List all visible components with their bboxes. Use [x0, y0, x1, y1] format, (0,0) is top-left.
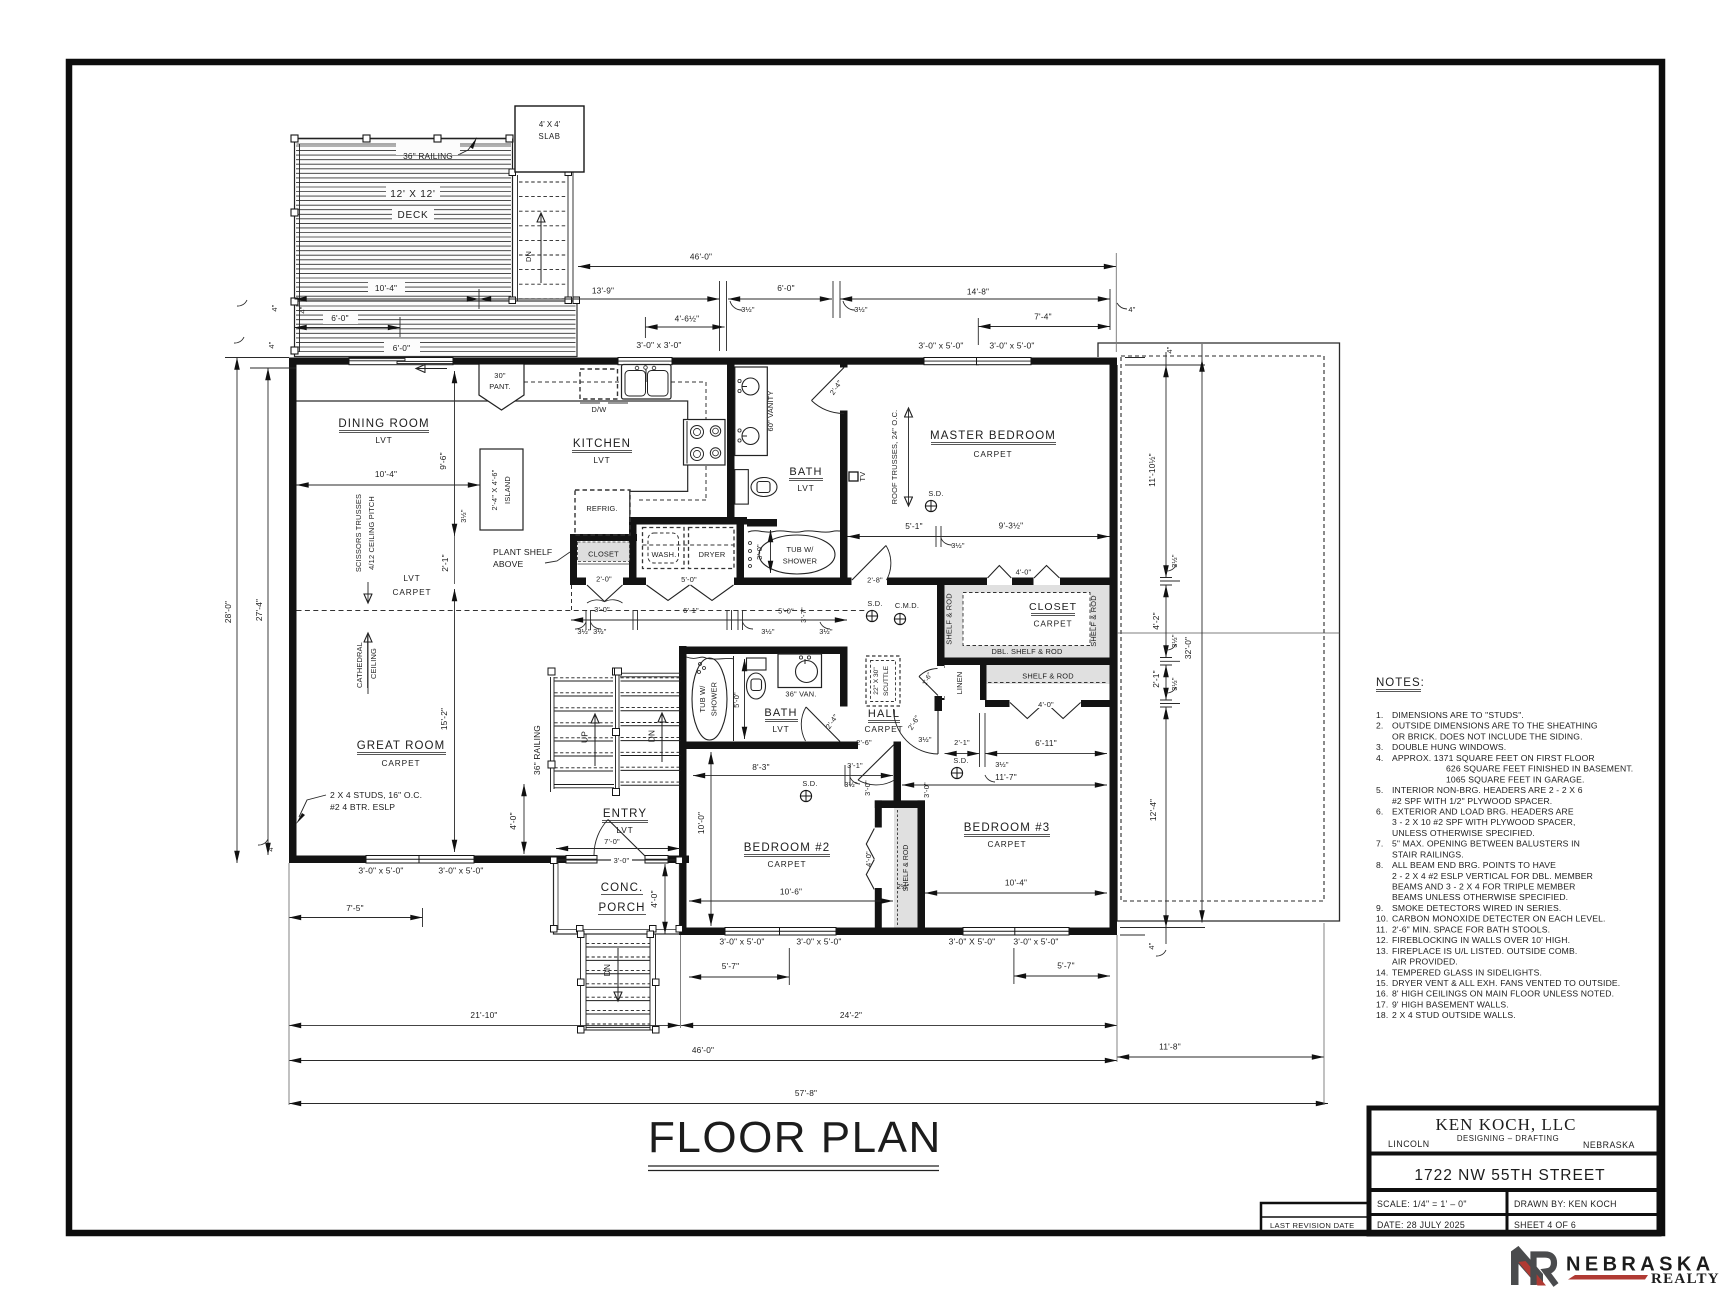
svg-text:S.D.: S.D. [802, 779, 817, 788]
svg-text:4": 4" [267, 341, 276, 348]
svg-text:TUB W/: TUB W/ [786, 545, 814, 554]
svg-text:24'-2": 24'-2" [840, 1010, 862, 1020]
svg-text:4'-0": 4'-0" [508, 812, 518, 830]
svg-text:CARPET: CARPET [381, 758, 420, 768]
svg-text:DIMENSIONS ARE TO "STUDS".: DIMENSIONS ARE TO "STUDS". [1392, 710, 1524, 720]
svg-text:CARPET: CARPET [973, 449, 1012, 459]
svg-text:MASTER BEDROOM: MASTER BEDROOM [930, 430, 1056, 442]
svg-text:SHELF & ROD: SHELF & ROD [945, 593, 954, 644]
svg-text:2'-1": 2'-1" [1151, 670, 1161, 688]
svg-text:3.: 3. [1376, 742, 1383, 752]
svg-text:GREAT ROOM: GREAT ROOM [357, 740, 446, 752]
svg-text:SHOWER: SHOWER [783, 557, 817, 566]
svg-text:LVT: LVT [593, 455, 610, 465]
svg-text:13'-9": 13'-9" [592, 286, 614, 296]
svg-text:4' X 4': 4' X 4' [539, 120, 561, 129]
svg-text:6'-0": 6'-0" [331, 313, 349, 323]
svg-text:CLOSET: CLOSET [588, 550, 619, 559]
svg-text:EXTERIOR AND LOAD BRG. HEADERS: EXTERIOR AND LOAD BRG. HEADERS ARE [1392, 807, 1574, 817]
svg-text:PLANT SHELF: PLANT SHELF [493, 547, 552, 557]
svg-text:BEAMS AND 3 - 2 X 4 FOR TRIPLE: BEAMS AND 3 - 2 X 4 FOR TRIPLE MEMBER [1392, 882, 1576, 892]
svg-text:4'-2": 4'-2" [1151, 612, 1161, 630]
svg-text:ALL BEAM END BRG. POINTS TO HA: ALL BEAM END BRG. POINTS TO HAVE [1392, 860, 1556, 870]
svg-text:CARPET: CARPET [767, 859, 806, 869]
svg-text:27'-4": 27'-4" [254, 599, 264, 621]
svg-text:LVT: LVT [616, 825, 633, 835]
svg-text:6'-1": 6'-1" [683, 606, 699, 615]
svg-text:BEAMS UNLESS OTHERWISE SPECIFI: BEAMS UNLESS OTHERWISE SPECIFIED. [1392, 892, 1568, 902]
svg-text:S.D.: S.D. [928, 489, 943, 498]
svg-text:10'-4": 10'-4" [375, 469, 397, 479]
svg-text:9'-6": 9'-6" [438, 452, 448, 470]
svg-text:8.: 8. [1376, 860, 1383, 870]
svg-text:5'-0": 5'-0" [732, 692, 741, 708]
svg-text:CATHEDRAL: CATHEDRAL [355, 642, 364, 688]
svg-text:46'-0": 46'-0" [692, 1045, 714, 1055]
svg-text:36" VAN.: 36" VAN. [785, 690, 816, 699]
svg-text:3½": 3½" [844, 780, 858, 789]
svg-text:2'-1": 2'-1" [954, 738, 970, 747]
svg-text:4'-0": 4'-0" [1038, 700, 1054, 709]
svg-text:3'-0": 3'-0" [614, 856, 630, 865]
svg-text:11'-10½": 11'-10½" [1147, 453, 1157, 487]
svg-text:32'-0": 32'-0" [1183, 637, 1193, 659]
svg-text:LAST REVISION DATE: LAST REVISION DATE [1270, 1221, 1354, 1230]
svg-text:STAIR RAILINGS.: STAIR RAILINGS. [1392, 849, 1464, 859]
svg-text:FLOOR PLAN: FLOOR PLAN [648, 1113, 942, 1162]
svg-text:3½" 3½": 3½" 3½" [577, 627, 606, 636]
svg-text:12'-4": 12'-4" [1148, 799, 1158, 821]
svg-text:4.: 4. [1376, 753, 1383, 763]
svg-text:LINCOLN: LINCOLN [1388, 1139, 1430, 1149]
svg-text:3'-7": 3'-7" [799, 607, 808, 623]
svg-text:11'-8": 11'-8" [1159, 1042, 1181, 1052]
svg-text:OR BRICK. DOES NOT INCLUDE TH: OR BRICK. DOES NOT INCLUDE THE SIDING. [1392, 731, 1583, 741]
svg-text:3'-0" x 5'-0": 3'-0" x 5'-0" [918, 341, 963, 351]
svg-text:2 X 4 STUDS, 16" O.C.: 2 X 4 STUDS, 16" O.C. [330, 790, 422, 800]
svg-text:15.: 15. [1376, 978, 1388, 988]
svg-text:4": 4" [298, 306, 307, 313]
svg-text:FIREBLOCKING IN WALLS OVER 10': FIREBLOCKING IN WALLS OVER 10' HIGH. [1392, 935, 1570, 945]
svg-text:FIREPLACE IS U/L LISTED. OUTS: FIREPLACE IS U/L LISTED. OUTSIDE COMB. [1392, 946, 1577, 956]
svg-text:2½": 2½" [897, 883, 910, 891]
svg-text:3½": 3½" [761, 627, 775, 636]
svg-text:INTERIOR NON-BRG. HEADERS ARE: INTERIOR NON-BRG. HEADERS ARE 2 - 2 X 6 [1392, 785, 1583, 795]
svg-text:CEILING: CEILING [369, 648, 378, 679]
svg-text:14.: 14. [1376, 967, 1388, 977]
svg-text:3½": 3½" [918, 735, 932, 744]
svg-text:#2 SPF WITH 1/2" PLYWOOD SPACE: #2 SPF WITH 1/2" PLYWOOD SPACER. [1392, 796, 1552, 806]
svg-text:5'-0": 5'-0" [681, 575, 697, 584]
svg-text:S.D.: S.D. [867, 599, 882, 608]
svg-text:SCUTTLE: SCUTTLE [883, 665, 890, 696]
svg-text:2'-4" X 4'-6": 2'-4" X 4'-6" [490, 469, 499, 510]
svg-text:TV: TV [858, 472, 867, 482]
svg-text:2 X 4 STUD OUTSIDE WALLS.: 2 X 4 STUD OUTSIDE WALLS. [1392, 1010, 1516, 1020]
svg-text:REFRIG.: REFRIG. [586, 504, 617, 513]
svg-text:16.: 16. [1376, 989, 1388, 999]
svg-text:S.D.: S.D. [953, 756, 968, 765]
svg-text:3'-0": 3'-0" [863, 780, 872, 796]
svg-text:C.M.D.: C.M.D. [895, 601, 919, 610]
svg-text:DATE: 28 JULY 2025: DATE: 28 JULY 2025 [1377, 1220, 1465, 1230]
svg-text:13.: 13. [1376, 946, 1388, 956]
svg-text:15'-2": 15'-2" [439, 708, 449, 730]
svg-text:CARPET: CARPET [392, 587, 431, 597]
svg-text:5'-7": 5'-7" [1057, 961, 1075, 971]
svg-text:2'-6" MIN. SPACE FOR BATH STOO: 2'-6" MIN. SPACE FOR BATH STOOLS. [1392, 924, 1550, 934]
svg-text:CARPET: CARPET [1033, 619, 1072, 629]
svg-text:LVT: LVT [403, 573, 420, 583]
svg-text:ABOVE: ABOVE [493, 559, 523, 569]
svg-text:2'-6": 2'-6" [856, 738, 872, 747]
svg-text:3½": 3½" [459, 509, 468, 523]
svg-text:12' X 12': 12' X 12' [390, 189, 436, 200]
svg-text:DESIGNING – DRAFTING: DESIGNING – DRAFTING [1457, 1134, 1559, 1143]
svg-text:3½": 3½" [741, 305, 755, 314]
svg-text:3'-0" x 5'-0": 3'-0" x 5'-0" [1013, 937, 1058, 947]
svg-text:6'-0": 6'-0" [777, 283, 795, 293]
svg-text:CONC.: CONC. [601, 882, 644, 894]
svg-text:REALTY: REALTY [1651, 1271, 1720, 1287]
svg-text:1065 SQUARE FEET IN GARAGE.: 1065 SQUARE FEET IN GARAGE. [1446, 774, 1585, 784]
svg-text:DN: DN [524, 251, 533, 262]
svg-text:30": 30" [494, 371, 506, 380]
svg-text:8' HIGH CEILINGS ON MAIN FLOOR: 8' HIGH CEILINGS ON MAIN FLOOR UNLESS NO… [1392, 989, 1614, 999]
svg-text:7'-0": 7'-0" [604, 837, 620, 846]
svg-text:60" VANITY: 60" VANITY [766, 390, 775, 431]
svg-text:10'-0": 10'-0" [696, 812, 706, 834]
svg-text:626 SQUARE FEET FINISHED IN BA: 626 SQUARE FEET FINISHED IN BASEMENT. [1446, 764, 1633, 774]
svg-text:D/W: D/W [592, 405, 607, 414]
svg-text:6'-0": 6'-0" [393, 343, 411, 353]
svg-text:4'-0": 4'-0" [864, 851, 873, 867]
svg-text:3½": 3½" [951, 541, 965, 550]
svg-text:DRAWN BY: KEN KOCH: DRAWN BY: KEN KOCH [1514, 1199, 1617, 1209]
svg-text:2 - 2 X 4 #2 ESLP VERTICAL FOR: 2 - 2 X 4 #2 ESLP VERTICAL FOR DBL. MEMB… [1392, 871, 1593, 881]
svg-text:3'-0": 3'-0" [755, 544, 764, 560]
svg-text:4": 4" [1128, 305, 1135, 314]
svg-text:6'-11": 6'-11" [1035, 738, 1057, 748]
svg-text:SHEET 4 OF 6: SHEET 4 OF 6 [1514, 1220, 1576, 1230]
svg-text:4'-0": 4'-0" [1016, 568, 1032, 577]
svg-text:LVT: LVT [772, 724, 789, 734]
svg-text:3'-0" x 5'-0": 3'-0" x 5'-0" [989, 341, 1034, 351]
svg-text:17.: 17. [1376, 999, 1388, 1009]
svg-text:4'-0": 4'-0" [649, 890, 659, 908]
svg-text:5.: 5. [1376, 785, 1383, 795]
svg-text:21'-10": 21'-10" [470, 1010, 497, 1020]
svg-text:7.: 7. [1376, 839, 1383, 849]
svg-text:3½": 3½" [854, 305, 868, 314]
svg-text:SCALE: 1/4" = 1' – 0": SCALE: 1/4" = 1' – 0" [1377, 1199, 1467, 1209]
svg-text:3½": 3½" [819, 627, 833, 636]
svg-text:ENTRY: ENTRY [603, 808, 647, 820]
svg-text:3 - 2 X 10 #2 SPF WITH PLYWOO: 3 - 2 X 10 #2 SPF WITH PLYWOOD SPACER, [1392, 817, 1576, 827]
svg-text:5'-1": 5'-1" [905, 521, 923, 531]
svg-text:4": 4" [1165, 346, 1174, 353]
svg-text:7'-5": 7'-5" [346, 903, 364, 913]
svg-text:11'-7": 11'-7" [995, 772, 1017, 782]
svg-text:5" MAX. OPENING BETWEEN BALUST: 5" MAX. OPENING BETWEEN BALUSTERS IN [1392, 839, 1580, 849]
svg-text:36" RAILING: 36" RAILING [403, 151, 453, 161]
svg-text:57'-8": 57'-8" [795, 1088, 817, 1098]
svg-text:BATH: BATH [789, 466, 822, 478]
svg-text:ISLAND: ISLAND [503, 476, 512, 504]
svg-text:2'-0": 2'-0" [596, 575, 612, 584]
svg-text:2.: 2. [1376, 721, 1383, 731]
svg-text:3'-1": 3'-1" [847, 761, 863, 770]
svg-text:PANT.: PANT. [489, 382, 510, 391]
svg-text:5'-0": 5'-0" [778, 607, 794, 616]
svg-text:46'-0": 46'-0" [690, 252, 712, 262]
svg-text:TUB W/: TUB W/ [698, 685, 707, 713]
svg-text:BEDROOM #3: BEDROOM #3 [964, 822, 1050, 834]
svg-text:BEDROOM #2: BEDROOM #2 [744, 842, 830, 854]
svg-text:DN: DN [602, 964, 612, 976]
svg-text:AIR PROVIDED.: AIR PROVIDED. [1392, 957, 1458, 967]
svg-text:3½": 3½" [1170, 677, 1179, 691]
svg-text:3'-0" X 5'-0": 3'-0" X 5'-0" [949, 937, 996, 947]
svg-text:SHELF & ROD: SHELF & ROD [1022, 672, 1073, 681]
svg-text:UNLESS OTHERWISE SPECIFIED.: UNLESS OTHERWISE SPECIFIED. [1392, 828, 1535, 838]
svg-text:TEMPERED GLASS IN SIDELIGHTS.: TEMPERED GLASS IN SIDELIGHTS. [1392, 967, 1542, 977]
svg-text:36" RAILING: 36" RAILING [532, 725, 542, 775]
svg-text:DRYER VENT & ALL EXH. FANS VEN: DRYER VENT & ALL EXH. FANS VENTED TO OUT… [1392, 978, 1620, 988]
svg-text:3'-0" x 5'-0": 3'-0" x 5'-0" [358, 866, 403, 876]
svg-text:ROOF TRUSSES, 24" O.C.: ROOF TRUSSES, 24" O.C. [890, 410, 899, 505]
svg-text:CARBON MONOXIDE DETECTER ON EA: CARBON MONOXIDE DETECTER ON EACH LEVEL. [1392, 914, 1606, 924]
svg-text:OUTSIDE DIMENSIONS ARE TO THE: OUTSIDE DIMENSIONS ARE TO THE SHEATHING [1392, 721, 1598, 731]
svg-text:SHELF & ROD: SHELF & ROD [1089, 595, 1098, 646]
svg-text:2'-1": 2'-1" [440, 554, 450, 572]
svg-text:10'-4": 10'-4" [1005, 878, 1027, 888]
svg-text:1.: 1. [1376, 710, 1383, 720]
svg-text:5'-7": 5'-7" [722, 961, 740, 971]
svg-text:SCISSORS TRUSSES: SCISSORS TRUSSES [354, 494, 363, 572]
svg-text:22" X 30": 22" X 30" [873, 667, 880, 695]
svg-text:3½": 3½" [1170, 634, 1179, 648]
svg-text:3'-0": 3'-0" [922, 782, 931, 798]
svg-text:6.: 6. [1376, 807, 1383, 817]
svg-text:3½": 3½" [995, 760, 1009, 769]
svg-text:10'-4": 10'-4" [375, 283, 397, 293]
svg-text:NOTES:: NOTES: [1376, 677, 1425, 689]
svg-text:UP: UP [580, 731, 590, 743]
svg-text:DECK: DECK [398, 210, 429, 221]
svg-text:10'-6": 10'-6" [780, 887, 802, 897]
svg-text:NEBRASKA: NEBRASKA [1583, 1140, 1635, 1150]
svg-text:KITCHEN: KITCHEN [573, 438, 631, 450]
svg-text:3'-0" x 5'-0": 3'-0" x 5'-0" [796, 937, 841, 947]
svg-text:4/12 CEILING PITCH: 4/12 CEILING PITCH [367, 496, 376, 570]
svg-text:3'-0" x 3'-0": 3'-0" x 3'-0" [636, 340, 681, 350]
svg-text:SLAB: SLAB [539, 132, 561, 141]
svg-text:18.: 18. [1376, 1010, 1388, 1020]
svg-text:3'-0": 3'-0" [594, 605, 610, 614]
svg-text:DN: DN [647, 730, 657, 742]
svg-text:4": 4" [266, 844, 275, 851]
svg-text:LVT: LVT [797, 483, 814, 493]
svg-text:9'-3½": 9'-3½" [999, 521, 1024, 531]
svg-text:10.: 10. [1376, 914, 1388, 924]
svg-text:CARPET: CARPET [987, 839, 1026, 849]
svg-text:7'-4": 7'-4" [1034, 312, 1052, 322]
svg-text:8'-3": 8'-3" [752, 762, 770, 772]
svg-text:CARPET: CARPET [864, 724, 903, 734]
svg-text:1722 NW 55TH STREET: 1722 NW 55TH STREET [1414, 1167, 1605, 1184]
svg-text:LINEN: LINEN [955, 672, 964, 695]
svg-text:HALL: HALL [868, 708, 900, 720]
svg-text:DRYER: DRYER [699, 550, 726, 559]
svg-text:DINING ROOM: DINING ROOM [338, 418, 429, 430]
svg-text:9.: 9. [1376, 903, 1383, 913]
svg-text:DBL. SHELF & ROD: DBL. SHELF & ROD [992, 647, 1063, 656]
svg-text:SMOKE DETECTORS WIRED IN SERIE: SMOKE DETECTORS WIRED IN SERIES. [1392, 903, 1561, 913]
svg-text:12.: 12. [1376, 935, 1388, 945]
svg-text:28'-0": 28'-0" [223, 601, 233, 623]
svg-text:#2 4 BTR. ESLP: #2 4 BTR. ESLP [330, 802, 395, 812]
svg-text:3½": 3½" [1170, 554, 1179, 568]
svg-text:9' HIGH BASEMENT WALLS.: 9' HIGH BASEMENT WALLS. [1392, 999, 1509, 1009]
svg-text:CLOSET: CLOSET [1029, 601, 1077, 613]
svg-text:14'-8": 14'-8" [967, 287, 989, 297]
svg-text:PORCH: PORCH [598, 902, 645, 914]
svg-text:4": 4" [1147, 942, 1156, 949]
svg-text:2'-8": 2'-8" [867, 576, 883, 585]
svg-text:APPROX. 1371 SQUARE FEET ON F: APPROX. 1371 SQUARE FEET ON FIRST FLOOR [1392, 753, 1595, 763]
svg-text:3'-0" x 5'-0": 3'-0" x 5'-0" [438, 866, 483, 876]
svg-text:4'-6½": 4'-6½" [675, 314, 700, 324]
svg-text:KEN KOCH, LLC: KEN KOCH, LLC [1436, 1115, 1577, 1134]
svg-text:DOUBLE HUNG WINDOWS.: DOUBLE HUNG WINDOWS. [1392, 742, 1506, 752]
svg-text:4": 4" [270, 304, 279, 311]
svg-text:3'-0" x 5'-0": 3'-0" x 5'-0" [719, 937, 764, 947]
svg-text:BATH: BATH [764, 707, 797, 719]
svg-text:LVT: LVT [375, 435, 392, 445]
svg-text:WASH.: WASH. [652, 550, 677, 559]
svg-text:SHOWER: SHOWER [710, 682, 719, 716]
svg-text:11.: 11. [1376, 924, 1388, 934]
